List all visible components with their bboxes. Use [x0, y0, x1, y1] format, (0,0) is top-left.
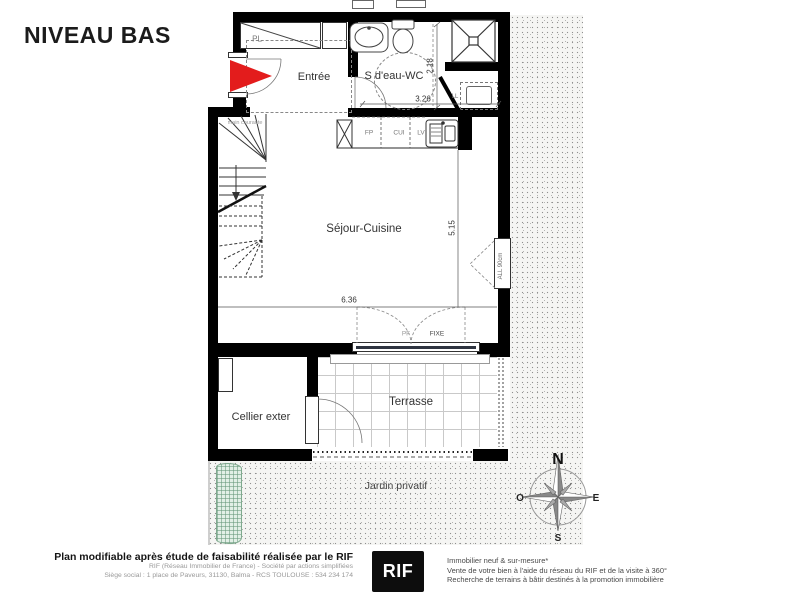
- footer-company-line2: Siège social : 1 place de Paveurs, 31130…: [40, 572, 353, 581]
- right-window-swing: [470, 240, 495, 288]
- fixed-pane-label: FIXE: [430, 331, 444, 338]
- kitchen-unit-label: CUI: [393, 130, 404, 137]
- rif-logo: RIF: [372, 551, 424, 592]
- page-title: NIVEAU BAS: [24, 22, 171, 49]
- dim-living-width: 6.36: [341, 296, 357, 305]
- entry-door-frame-bottom: [228, 92, 248, 98]
- room-label-bathroom: S d'eau-WC: [365, 70, 424, 82]
- dim-bathroom-width: 3.26: [415, 95, 431, 104]
- wall-right-upper: [498, 12, 510, 240]
- washing-machine-label: LL: [452, 94, 459, 100]
- exterior-ground-right: [510, 15, 583, 461]
- footer-company-block: Plan modifiable après étude de faisabili…: [40, 551, 353, 580]
- hotplate-label: FP: [365, 130, 373, 137]
- upper-floor-fixture-b: [396, 0, 426, 8]
- garden-fence: [313, 452, 473, 457]
- footer-service-2: Vente de votre bien à l'aide du réseau d…: [447, 566, 667, 576]
- cellar-niche: [218, 358, 233, 392]
- wall-cellar-right: [307, 357, 318, 397]
- footer-service-3: Recherche de terrains à bâtir destinés à…: [447, 575, 667, 585]
- upper-floor-fixture-a: [352, 0, 374, 9]
- kitchen-sink: [426, 120, 458, 147]
- sill-height-label: ALL 90cm: [498, 253, 504, 280]
- closet-label: PL: [252, 35, 262, 44]
- wall-left-main: [208, 107, 218, 461]
- cellar-door-frame: [305, 396, 319, 444]
- footer-company-line1: RIF (Réseau Immobilier de France) - Soci…: [40, 563, 353, 572]
- dishwasher-label: LV: [417, 130, 424, 137]
- bay-window-glass: [356, 346, 476, 349]
- footer-service-1: Immobilier neuf & sur-mesure*: [447, 556, 667, 566]
- toilet: [392, 20, 414, 53]
- room-label-entree: Entrée: [298, 71, 330, 83]
- hedge: [216, 463, 242, 544]
- floor-plan-page: NIVEAU BAS: [0, 0, 800, 600]
- wall-kitchen-block: [458, 115, 472, 150]
- wall-bottom-right: [473, 449, 508, 461]
- stair-handrail: [218, 186, 266, 212]
- footer-services-block: Immobilier neuf & sur-mesure* Vente de v…: [447, 556, 667, 585]
- wall-below-shower: [445, 62, 508, 71]
- footer-disclaimer: Plan modifiable après étude de faisabili…: [40, 551, 353, 563]
- french-window-label: PF: [402, 331, 410, 338]
- garden-ground: [208, 461, 583, 545]
- shower: [452, 20, 495, 62]
- dim-living-depth: 5.15: [448, 220, 457, 236]
- room-label-cellar: Cellier exter: [232, 411, 291, 423]
- room-label-garden: Jardin privatif: [365, 480, 427, 492]
- room-label-terrace: Terrasse: [389, 396, 433, 408]
- washing-machine: [466, 86, 492, 105]
- room-label-living: Séjour-Cuisine: [326, 223, 401, 235]
- handrail-label: main courante: [228, 120, 263, 126]
- terrace-edge: [499, 358, 503, 447]
- compass-east-label: E: [593, 493, 600, 504]
- wall-bottom-left: [213, 449, 312, 461]
- entry-door-frame-top: [228, 52, 248, 58]
- stair-down-arrow-icon: [232, 192, 240, 201]
- technical-duct: [337, 120, 352, 148]
- dim-bathroom-depth: 2.18: [426, 58, 435, 74]
- staircase: [218, 114, 266, 277]
- wall-top: [237, 12, 510, 22]
- bay-window-sill: [330, 354, 490, 364]
